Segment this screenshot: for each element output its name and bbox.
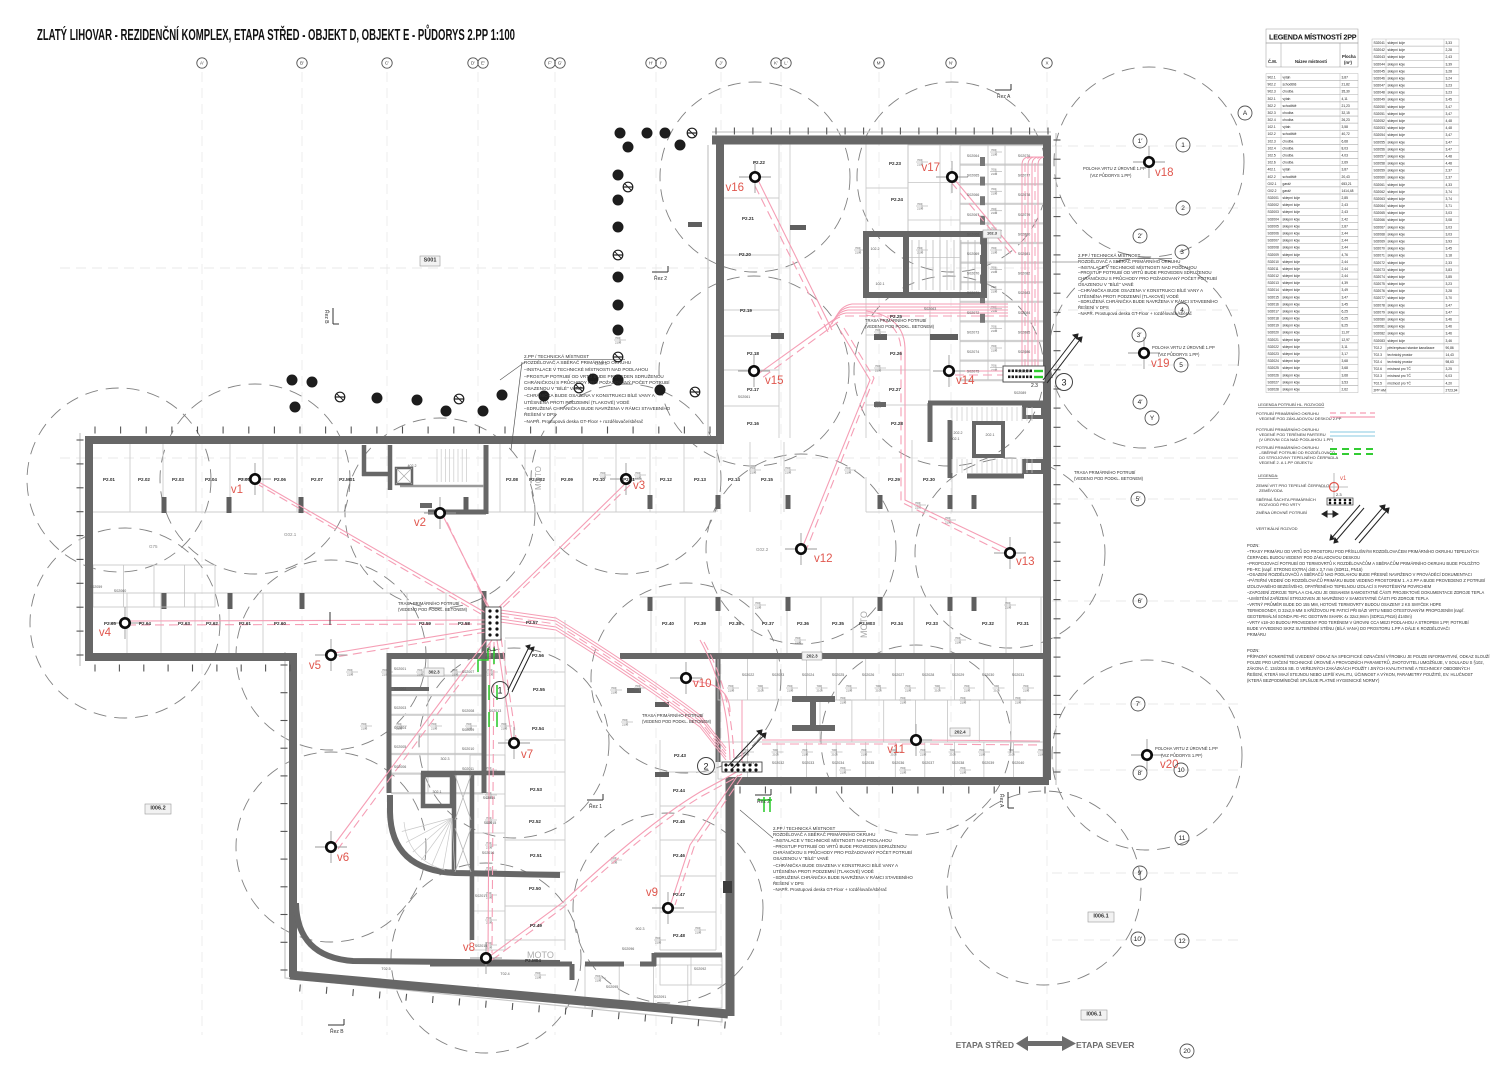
svg-text:sklepní kóje: sklepní kóje xyxy=(1283,302,1301,306)
svg-text:2100: 2100 xyxy=(991,348,998,352)
svg-text:3,46: 3,46 xyxy=(1446,318,1453,322)
svg-text:S02065: S02065 xyxy=(1374,211,1386,215)
svg-text:S02004: S02004 xyxy=(394,726,406,730)
svg-text:102.1: 102.1 xyxy=(876,282,885,286)
svg-text:I′: I′ xyxy=(660,61,662,66)
svg-text:N′: N′ xyxy=(949,61,953,66)
svg-text:sklepní kóje: sklepní kóje xyxy=(1388,247,1406,251)
svg-text:2100: 2100 xyxy=(991,211,998,215)
svg-text:J′: J′ xyxy=(719,61,722,66)
svg-text:sklepní kóje: sklepní kóje xyxy=(1283,338,1301,342)
svg-text:P2.33: P2.33 xyxy=(926,621,938,626)
svg-text:chodba: chodba xyxy=(1283,118,1294,122)
svg-text:6′: 6′ xyxy=(1138,598,1144,605)
svg-text:S02043: S02043 xyxy=(1374,55,1386,59)
svg-text:S02059: S02059 xyxy=(90,585,102,589)
svg-text:12: 12 xyxy=(1178,938,1186,945)
svg-text:700: 700 xyxy=(1038,748,1043,752)
svg-text:(VIZ PŮDORYS 1.PP): (VIZ PŮDORYS 1.PP) xyxy=(1090,173,1132,178)
svg-text:P2.38: P2.38 xyxy=(729,621,741,626)
svg-text:700: 700 xyxy=(452,668,457,672)
svg-text:2,43: 2,43 xyxy=(1342,203,1349,207)
svg-text:S02029: S02029 xyxy=(952,673,964,677)
svg-text:700: 700 xyxy=(615,336,620,340)
svg-text:sklepní kóje: sklepní kóje xyxy=(1388,154,1406,158)
svg-text:A.1: A.1 xyxy=(487,647,497,653)
svg-text:2100: 2100 xyxy=(991,270,998,274)
svg-text:700: 700 xyxy=(991,266,996,270)
svg-text:v12: v12 xyxy=(814,553,833,565)
svg-text:D′: D′ xyxy=(471,61,475,66)
svg-text:místnost pro TČ: místnost pro TČ xyxy=(1388,380,1412,385)
svg-text:P2.11: P2.11 xyxy=(623,477,635,482)
svg-text:sklepní kóje: sklepní kóje xyxy=(1283,388,1301,392)
svg-text:S02079: S02079 xyxy=(1374,310,1386,314)
svg-text:700: 700 xyxy=(417,668,422,672)
svg-text:v8: v8 xyxy=(463,942,475,954)
svg-text:700: 700 xyxy=(991,364,996,368)
svg-text:sklepní kóje: sklepní kóje xyxy=(1283,210,1301,214)
svg-text:S02037: S02037 xyxy=(922,761,934,765)
svg-text:700: 700 xyxy=(1015,696,1020,700)
svg-text:2100: 2100 xyxy=(950,752,957,756)
svg-text:–INSTALACE V TECHNICKÉ MÍSTNOS: –INSTALACE V TECHNICKÉ MÍSTNOSTI NAD POD… xyxy=(524,366,648,372)
svg-text:S02014: S02014 xyxy=(483,796,495,800)
svg-text:–TRASY PRIMÁRU OD VRTŮ DO PROS: –TRASY PRIMÁRU OD VRTŮ DO PROSTORU POD P… xyxy=(1247,549,1479,554)
svg-text:S02026: S02026 xyxy=(862,673,874,677)
svg-text:700: 700 xyxy=(991,324,996,328)
svg-text:Řez 2: Řez 2 xyxy=(757,797,770,805)
svg-text:2100: 2100 xyxy=(452,672,459,676)
svg-text:2,69: 2,69 xyxy=(1342,161,1349,165)
svg-text:21,23: 21,23 xyxy=(1342,104,1350,108)
svg-text:sklepní kóje: sklepní kóje xyxy=(1388,225,1406,229)
svg-text:3,49: 3,49 xyxy=(1342,288,1349,292)
svg-text:2100: 2100 xyxy=(991,192,998,196)
svg-text:S02026: S02026 xyxy=(1268,373,1280,377)
svg-text:3,23: 3,23 xyxy=(1446,282,1453,286)
svg-text:2100: 2100 xyxy=(615,340,622,344)
svg-text:P2.64: P2.64 xyxy=(139,621,151,626)
svg-text:C′: C′ xyxy=(385,61,389,66)
svg-text:202.3: 202.3 xyxy=(806,654,818,659)
svg-text:S02069: S02069 xyxy=(1374,240,1386,244)
svg-text:S02075: S02075 xyxy=(967,370,979,374)
svg-text:S02031: S02031 xyxy=(1012,673,1024,677)
svg-text:700: 700 xyxy=(955,636,960,640)
svg-text:sklepní kóje: sklepní kóje xyxy=(1388,325,1406,329)
svg-text:700: 700 xyxy=(979,748,984,752)
svg-text:S001: S001 xyxy=(424,258,437,264)
svg-text:S02013: S02013 xyxy=(1268,281,1280,285)
svg-text:P2.45: P2.45 xyxy=(673,819,685,824)
svg-text:P2.54: P2.54 xyxy=(532,726,544,731)
svg-text:S02021: S02021 xyxy=(1268,338,1280,342)
svg-text:v1: v1 xyxy=(231,484,243,496)
svg-text:S02027: S02027 xyxy=(1268,380,1280,384)
svg-text:2100: 2100 xyxy=(964,688,971,692)
svg-text:sklepní kóje: sklepní kóje xyxy=(1388,140,1406,144)
svg-text:P2.05: P2.05 xyxy=(238,477,250,482)
svg-text:sklepní kóje: sklepní kóje xyxy=(1388,77,1406,81)
svg-text:–UMÍSTĚNÍ ZAŘÍZENÍ STROJOVEN J: –UMÍSTĚNÍ ZAŘÍZENÍ STROJOVEN JE NAVRŽENO… xyxy=(1247,596,1429,601)
svg-text:P2.47: P2.47 xyxy=(673,892,685,897)
svg-text:653,21: 653,21 xyxy=(1342,182,1352,186)
svg-text:S02012: S02012 xyxy=(1268,274,1280,278)
svg-text:102.4: 102.4 xyxy=(1268,146,1276,150)
svg-text:2: 2 xyxy=(1181,205,1185,212)
svg-text:sklepní kóje: sklepní kóje xyxy=(1388,332,1406,336)
svg-text:2.PP / TECHNICKÁ MÍSTNOST: 2.PP / TECHNICKÁ MÍSTNOST xyxy=(524,353,589,359)
svg-text:700: 700 xyxy=(695,926,700,930)
svg-text:(VEDENO POD PODKL. BETONEM): (VEDENO POD PODKL. BETONEM) xyxy=(642,719,712,724)
svg-text:2,43: 2,43 xyxy=(1342,210,1349,214)
svg-text:700: 700 xyxy=(964,684,969,688)
svg-text:GEOTERMÁLNÍ SONDA PE–RC GEOTWI: GEOTERMÁLNÍ SONDA PE–RC GEOTWIN SHARK 4x… xyxy=(1247,614,1412,619)
svg-text:B′: B′ xyxy=(300,61,304,66)
svg-text:2100: 2100 xyxy=(611,690,618,694)
svg-text:přečerpávací stanice kanalizac: přečerpávací stanice kanalizace xyxy=(1388,346,1435,350)
svg-text:T02.5: T02.5 xyxy=(381,967,390,971)
svg-text:3,03: 3,03 xyxy=(1446,232,1453,236)
svg-text:700: 700 xyxy=(755,601,760,605)
svg-text:2100: 2100 xyxy=(960,700,967,704)
svg-text:4,76: 4,76 xyxy=(1342,253,1349,257)
svg-text:3,03: 3,03 xyxy=(1446,211,1453,215)
svg-text:sklepní kóje: sklepní kóje xyxy=(1283,267,1301,271)
svg-text:P2.24: P2.24 xyxy=(891,197,903,202)
svg-text:chodba: chodba xyxy=(1283,154,1294,158)
svg-text:3,47: 3,47 xyxy=(1342,295,1349,299)
svg-text:S02062: S02062 xyxy=(1374,190,1386,194)
svg-text:výtah: výtah xyxy=(1283,125,1291,129)
svg-text:2100: 2100 xyxy=(991,290,998,294)
svg-text:sklepní kóje: sklepní kóje xyxy=(1283,359,1301,363)
svg-text:5′: 5′ xyxy=(1136,496,1142,503)
svg-text:3,74: 3,74 xyxy=(1446,190,1453,194)
svg-text:3,17: 3,17 xyxy=(1342,352,1349,356)
svg-text:Y: Y xyxy=(1150,415,1155,422)
svg-text:2100: 2100 xyxy=(1015,700,1022,704)
svg-text:3,47: 3,47 xyxy=(1446,140,1453,144)
svg-text:2,37: 2,37 xyxy=(1446,176,1453,180)
svg-text:v1: v1 xyxy=(1340,476,1347,482)
svg-text:S02077: S02077 xyxy=(1018,174,1030,178)
svg-text:P2.18: P2.18 xyxy=(747,351,759,356)
svg-text:sklepní kóje: sklepní kóje xyxy=(1283,246,1301,250)
svg-text:P2.63: P2.63 xyxy=(178,621,190,626)
svg-text:S02041: S02041 xyxy=(1374,41,1386,45)
svg-text:2100: 2100 xyxy=(875,368,882,372)
svg-text:S02012: S02012 xyxy=(485,656,497,660)
svg-text:–PROSTUP POTRUBÍ OD VRTŮ BUDE: –PROSTUP POTRUBÍ OD VRTŮ BUDE PROVEDEN S… xyxy=(524,372,664,379)
svg-text:ETAPA SEVER: ETAPA SEVER xyxy=(1076,1040,1134,1050)
svg-text:2′: 2′ xyxy=(1138,233,1144,240)
svg-text:P2.40: P2.40 xyxy=(662,621,674,626)
svg-text:S02061: S02061 xyxy=(738,395,750,399)
svg-text:S02053: S02053 xyxy=(1374,126,1386,130)
svg-text:S02011: S02011 xyxy=(1268,267,1279,271)
svg-text:902.3: 902.3 xyxy=(636,927,645,931)
svg-text:700: 700 xyxy=(875,364,880,368)
svg-text:ROZDĚLOVAČ A SBĚRAČ PRIMÁRNÍHO: ROZDĚLOVAČ A SBĚRAČ PRIMÁRNÍHO OKRUHU xyxy=(524,358,631,365)
svg-text:700: 700 xyxy=(950,748,955,752)
svg-text:700: 700 xyxy=(728,684,733,688)
svg-text:F′: F′ xyxy=(548,61,552,66)
svg-text:chodba: chodba xyxy=(1283,111,1294,115)
svg-text:2100: 2100 xyxy=(655,940,662,944)
svg-text:sklepní kóje: sklepní kóje xyxy=(1283,331,1301,335)
svg-text:700: 700 xyxy=(758,684,763,688)
svg-text:P2.51: P2.51 xyxy=(530,853,542,858)
svg-text:S02011: S02011 xyxy=(462,767,474,771)
svg-text:Řez 2: Řez 2 xyxy=(654,274,667,282)
svg-text:sklepní kóje: sklepní kóje xyxy=(1388,240,1406,244)
svg-text:3,18: 3,18 xyxy=(1446,254,1453,258)
svg-text:sklepní kóje: sklepní kóje xyxy=(1388,190,1406,194)
svg-text:2100: 2100 xyxy=(361,726,368,730)
svg-text:P2.M01: P2.M01 xyxy=(339,477,355,482)
svg-text:S02064: S02064 xyxy=(967,154,979,158)
svg-text:S02077: S02077 xyxy=(1374,296,1386,300)
svg-text:1: 1 xyxy=(1181,142,1185,149)
svg-text:–VRTNÝ PRŮMĚR BUDE DO 155 MM,: –VRTNÝ PRŮMĚR BUDE DO 155 MM, HOTOVÉ TER… xyxy=(1247,602,1442,607)
svg-text:POZN:: POZN: xyxy=(1247,648,1260,653)
svg-text:sklepní kóje: sklepní kóje xyxy=(1388,162,1406,166)
svg-text:2,28: 2,28 xyxy=(1446,48,1453,52)
svg-text:OSAZENOU V "BÍLÉ" VANĚ: OSAZENOU V "BÍLÉ" VANĚ xyxy=(773,856,829,861)
svg-text:sklepní kóje: sklepní kóje xyxy=(1388,254,1406,258)
svg-text:ŘEŠENÍ V DPS: ŘEŠENÍ V DPS xyxy=(524,410,556,417)
svg-text:35,30: 35,30 xyxy=(1342,90,1350,94)
svg-text:102.6: 102.6 xyxy=(1268,161,1276,165)
svg-text:4,39: 4,39 xyxy=(1342,281,1349,285)
svg-text:7′: 7′ xyxy=(1136,701,1142,708)
svg-text:3,25: 3,25 xyxy=(1446,367,1453,371)
svg-text:S02072: S02072 xyxy=(967,311,979,315)
svg-text:schodiště: schodiště xyxy=(1283,132,1297,136)
svg-text:2,87: 2,87 xyxy=(1342,224,1349,228)
svg-text:32,15: 32,15 xyxy=(1342,111,1350,115)
svg-text:3,24: 3,24 xyxy=(1446,77,1453,81)
svg-text:3,45: 3,45 xyxy=(1342,302,1349,306)
svg-text:sklepní kóje: sklepní kóje xyxy=(1283,232,1301,236)
svg-text:P2.02: P2.02 xyxy=(138,477,150,482)
svg-text:S02073: S02073 xyxy=(1374,268,1386,272)
svg-text:P2.26: P2.26 xyxy=(890,351,902,356)
svg-text:sklepní kóje: sklepní kóje xyxy=(1388,112,1406,116)
svg-text:P2.21: P2.21 xyxy=(742,216,754,221)
svg-text:S02019: S02019 xyxy=(1268,324,1280,328)
svg-text:sklepní kóje: sklepní kóje xyxy=(1388,48,1406,52)
svg-text:S02045: S02045 xyxy=(1374,69,1386,73)
svg-text:P2.09: P2.09 xyxy=(561,477,573,482)
svg-text:700: 700 xyxy=(960,766,965,770)
svg-text:S02039: S02039 xyxy=(982,761,994,765)
svg-text:–SDRUŽENÁ CHRÁNIČKA BUDE NAVRŽ: –SDRUŽENÁ CHRÁNIČKA BUDE NAVRŽENA V RÁMC… xyxy=(1078,299,1218,304)
svg-text:P2.55: P2.55 xyxy=(533,687,545,692)
svg-text:POLOHA VRTU Z ÚROVNĚ 1.PP: POLOHA VRTU Z ÚROVNĚ 1.PP xyxy=(1083,166,1146,171)
svg-text:P2.23: P2.23 xyxy=(889,161,901,166)
svg-text:2100: 2100 xyxy=(817,688,824,692)
svg-text:700: 700 xyxy=(991,344,996,348)
svg-text:202.1: 202.1 xyxy=(986,433,995,437)
svg-text:4,20: 4,20 xyxy=(1446,381,1453,385)
svg-text:T02.5: T02.5 xyxy=(1374,381,1383,385)
svg-text:4,48: 4,48 xyxy=(1446,119,1453,123)
svg-text:2100: 2100 xyxy=(1023,688,1030,692)
svg-text:700: 700 xyxy=(917,246,922,250)
svg-text:S02056: S02056 xyxy=(1374,147,1386,151)
svg-text:4,48: 4,48 xyxy=(1446,126,1453,130)
svg-text:S02071: S02071 xyxy=(967,291,979,295)
svg-text:2100: 2100 xyxy=(876,688,883,692)
svg-text:S02016: S02016 xyxy=(1268,302,1280,306)
svg-text:–CHRÁNIČKA BUDE OSAZENA V KONS: –CHRÁNIČKA BUDE OSAZENA V KONSTRUKCI BÍL… xyxy=(1078,288,1203,293)
svg-text:302.3: 302.3 xyxy=(1268,111,1276,115)
svg-text:sklepní kóje: sklepní kóje xyxy=(1283,310,1301,314)
svg-text:S02087: S02087 xyxy=(1018,370,1030,374)
svg-text:2100: 2100 xyxy=(787,688,794,692)
svg-text:garáž: garáž xyxy=(1283,182,1292,186)
svg-text:Řez B: Řez B xyxy=(323,310,331,324)
svg-text:S02070: S02070 xyxy=(1374,247,1386,251)
svg-text:S02081: S02081 xyxy=(1374,325,1386,329)
svg-text:P2.60: P2.60 xyxy=(274,621,286,626)
svg-text:–CHRÁNIČKA BUDE OSAZENA V KONS: –CHRÁNIČKA BUDE OSAZENA V KONSTRUKCI BÍL… xyxy=(773,863,898,868)
svg-text:700: 700 xyxy=(935,684,940,688)
svg-text:S02066: S02066 xyxy=(1374,218,1386,222)
svg-text:3,70: 3,70 xyxy=(1446,296,1453,300)
svg-text:2,44: 2,44 xyxy=(1342,274,1349,278)
svg-text:–PROSTUP POTRUBÍ OD VRTŮ BUDE: –PROSTUP POTRUBÍ OD VRTŮ BUDE PROVEDEN S… xyxy=(773,844,907,849)
svg-text:700: 700 xyxy=(501,722,506,726)
svg-text:3,45: 3,45 xyxy=(1446,247,1453,251)
svg-text:700: 700 xyxy=(846,684,851,688)
svg-text:4,48: 4,48 xyxy=(1446,162,1453,166)
svg-text:S02075: S02075 xyxy=(1374,282,1386,286)
svg-text:S02068: S02068 xyxy=(967,232,979,236)
svg-text:S02013: S02013 xyxy=(489,709,501,713)
svg-text:S02063: S02063 xyxy=(1374,197,1386,201)
svg-text:P2.06: P2.06 xyxy=(274,477,286,482)
svg-text:S02052: S02052 xyxy=(1374,119,1386,123)
svg-text:2100: 2100 xyxy=(917,206,924,210)
svg-text:P2.39: P2.39 xyxy=(694,621,706,626)
svg-text:2100: 2100 xyxy=(900,700,907,704)
svg-text:sklepní kóje: sklepní kóje xyxy=(1283,295,1301,299)
svg-text:6,03: 6,03 xyxy=(1446,374,1453,378)
svg-text:schodiště: schodiště xyxy=(1283,83,1297,87)
svg-text:700: 700 xyxy=(900,766,905,770)
svg-text:302.1: 302.1 xyxy=(1268,97,1276,101)
svg-text:102.2: 102.2 xyxy=(871,247,880,251)
svg-text:Řez B: Řez B xyxy=(330,1027,344,1035)
svg-text:BUDE VYVEDENO SKRZ SUTERÉNNÍ S: BUDE VYVEDENO SKRZ SUTERÉNNÍ STĚNU (BÍLÁ… xyxy=(1247,626,1450,631)
svg-text:S02065: S02065 xyxy=(967,174,979,178)
svg-text:H′: H′ xyxy=(649,61,653,66)
svg-text:S02009: S02009 xyxy=(462,728,474,732)
svg-text:G02.1: G02.1 xyxy=(1268,182,1277,186)
svg-text:S02054: S02054 xyxy=(1374,133,1386,137)
svg-text:10′: 10′ xyxy=(1134,936,1143,943)
svg-text:S02059: S02059 xyxy=(1374,169,1386,173)
svg-text:v2: v2 xyxy=(414,517,426,529)
svg-text:3,33: 3,33 xyxy=(1446,41,1453,45)
svg-text:14,43: 14,43 xyxy=(1446,353,1454,357)
svg-text:700: 700 xyxy=(595,974,600,978)
svg-text:700: 700 xyxy=(802,748,807,752)
svg-text:P2.49: P2.49 xyxy=(530,923,542,928)
svg-text:ZMĚNA ÚROVNĚ POTRUBÍ: ZMĚNA ÚROVNĚ POTRUBÍ xyxy=(1256,510,1308,515)
svg-text:T02.3: T02.3 xyxy=(1374,353,1383,357)
svg-text:–PÁTEŘNÍ VEDENÍ OD ROZDĚLOVAČŮ: –PÁTEŘNÍ VEDENÍ OD ROZDĚLOVAČŮ PRIMÁRU B… xyxy=(1247,578,1486,583)
svg-text:2100: 2100 xyxy=(960,770,967,774)
svg-text:S02014: S02014 xyxy=(1268,288,1280,292)
svg-text:700: 700 xyxy=(600,471,605,475)
svg-text:S02081: S02081 xyxy=(1018,252,1030,256)
svg-text:ŘEŠENÍ V DPS: ŘEŠENÍ V DPS xyxy=(1078,305,1109,310)
svg-text:VERTIKÁLNÍ ROZVOD: VERTIKÁLNÍ ROZVOD xyxy=(1256,526,1298,531)
svg-text:700: 700 xyxy=(1023,684,1028,688)
svg-text:3,28: 3,28 xyxy=(1446,289,1453,293)
svg-text:3,71: 3,71 xyxy=(1446,204,1453,208)
svg-text:S02076: S02076 xyxy=(1374,289,1386,293)
svg-text:2100: 2100 xyxy=(347,672,354,676)
svg-text:102.5: 102.5 xyxy=(1268,154,1276,158)
svg-text:2100: 2100 xyxy=(855,250,862,254)
svg-text:700: 700 xyxy=(817,684,822,688)
svg-text:700: 700 xyxy=(991,285,996,289)
svg-text:S02078: S02078 xyxy=(1018,193,1030,197)
svg-text:VEDENÉ 2. A 1.PP OBJEKTU: VEDENÉ 2. A 1.PP OBJEKTU xyxy=(1259,460,1313,465)
svg-text:LEGENDA:: LEGENDA: xyxy=(1258,473,1278,478)
svg-text:3,53: 3,53 xyxy=(1342,380,1349,384)
svg-text:P2.36: P2.36 xyxy=(797,621,809,626)
svg-text:700: 700 xyxy=(1005,601,1010,605)
svg-text:3,46: 3,46 xyxy=(1446,339,1453,343)
svg-text:sklepní kóje: sklepní kóje xyxy=(1388,232,1406,236)
svg-text:202.4: 202.4 xyxy=(954,730,966,735)
svg-text:ZEMĚ/VODA: ZEMĚ/VODA xyxy=(1259,488,1283,493)
svg-text:–PROSTUP POTRUBÍ OD VRTŮ BUDE: –PROSTUP POTRUBÍ OD VRTŮ BUDE PROVEDEN S… xyxy=(1078,270,1212,275)
svg-text:Plocha: Plocha xyxy=(1342,54,1356,59)
svg-text:M′: M′ xyxy=(877,61,882,66)
svg-text:S02035: S02035 xyxy=(862,761,874,765)
svg-text:S02023: S02023 xyxy=(1268,352,1280,356)
svg-text:POLOHA VRTU Z ÚROVNĚ 1.PP: POLOHA VRTU Z ÚROVNĚ 1.PP xyxy=(1155,746,1218,751)
svg-text:3,87: 3,87 xyxy=(1342,76,1349,80)
svg-text:902.1: 902.1 xyxy=(951,437,960,441)
svg-text:S02017: S02017 xyxy=(1268,310,1280,314)
svg-text:3,23: 3,23 xyxy=(1446,84,1453,88)
svg-text:2100: 2100 xyxy=(845,470,852,474)
svg-text:2100: 2100 xyxy=(935,688,942,692)
svg-text:sklepní kóje: sklepní kóje xyxy=(1388,105,1406,109)
svg-text:sklepní kóje: sklepní kóje xyxy=(1283,288,1301,292)
svg-text:S02044: S02044 xyxy=(1374,62,1386,66)
svg-text:3,47: 3,47 xyxy=(1446,133,1453,137)
svg-text:700: 700 xyxy=(655,936,660,940)
svg-text:700: 700 xyxy=(750,466,755,470)
svg-text:3: 3 xyxy=(1061,378,1066,388)
svg-text:S02080: S02080 xyxy=(1018,232,1030,236)
svg-text:sklepní kóje: sklepní kóje xyxy=(1388,98,1406,102)
svg-text:2100: 2100 xyxy=(535,975,542,979)
svg-text:302.2: 302.2 xyxy=(1268,104,1276,108)
svg-text:S02061: S02061 xyxy=(1374,183,1386,187)
svg-text:sklepní kóje: sklepní kóje xyxy=(1283,352,1301,356)
